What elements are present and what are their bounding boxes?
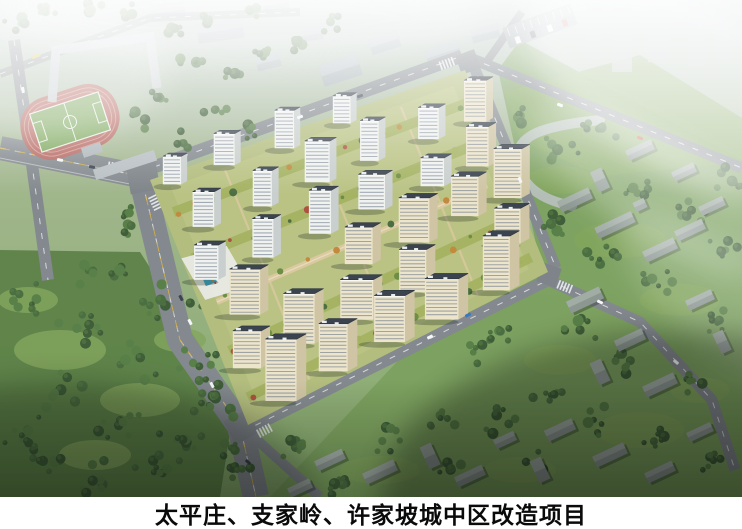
aerial-rendering-image [0, 0, 742, 497]
caption-bar: 太平庄、支家岭、许家坡城中区改造项目 [0, 497, 742, 529]
project-title-text: 太平庄、支家岭、许家坡城中区改造项目 [155, 496, 587, 529]
rendering-figure: 太平庄、支家岭、许家坡城中区改造项目 [0, 0, 742, 529]
